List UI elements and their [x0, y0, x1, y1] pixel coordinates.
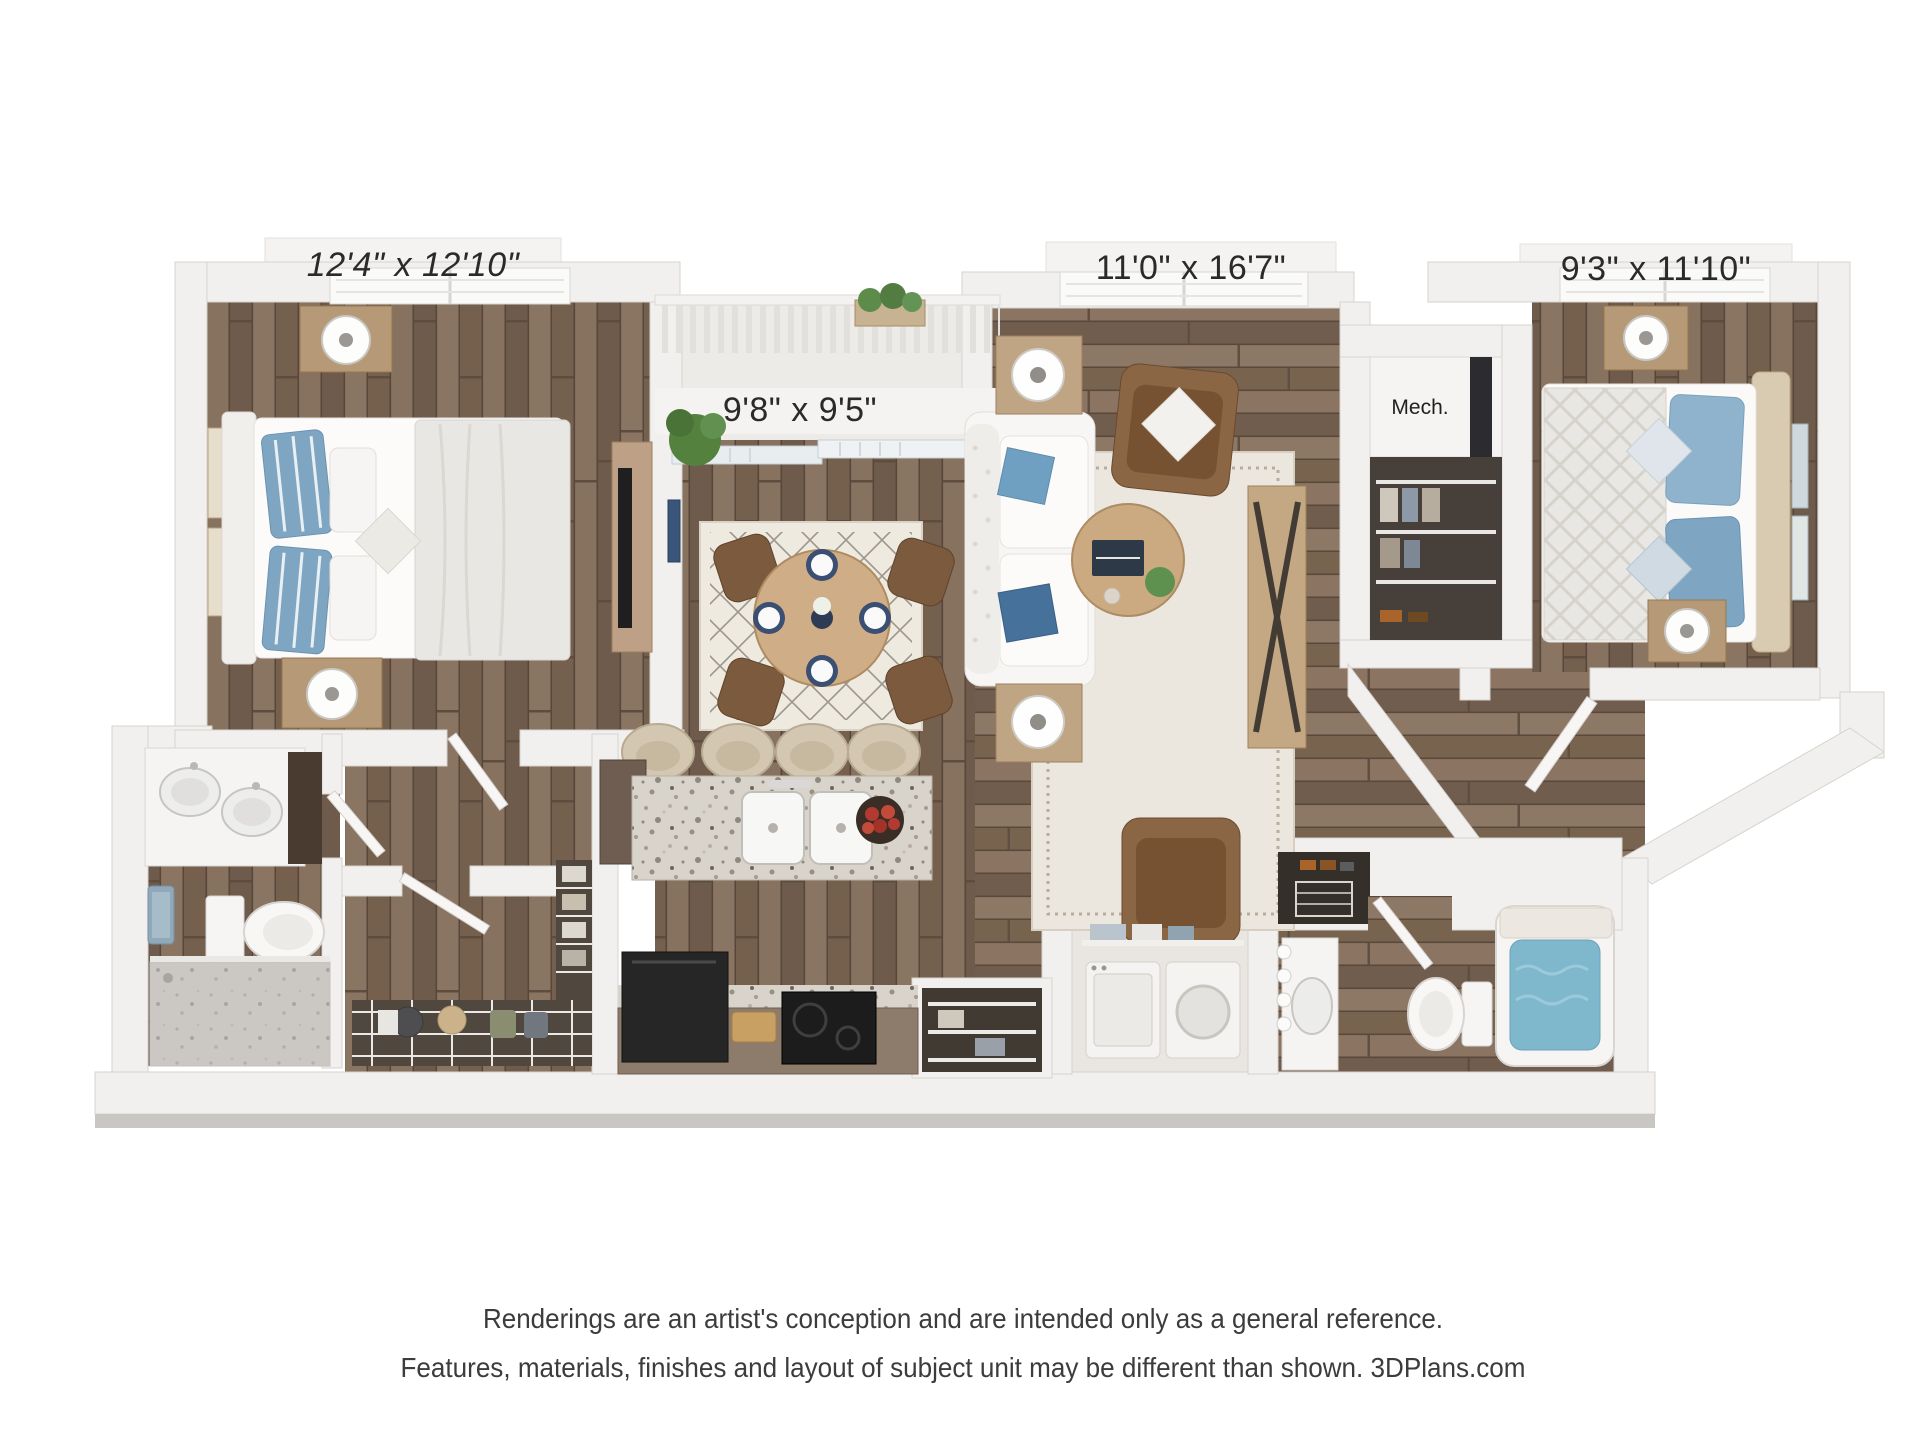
faucet: [768, 780, 812, 788]
disclaimer-line-1: Renderings are an artist's conception an…: [483, 1303, 1443, 1334]
sofa-back: [965, 424, 999, 674]
blue-throw-pillow: [998, 448, 1055, 505]
floor-plan-page: 12'4" x 12'10" 11'0" x 16'7" 9'3" x 11'1…: [0, 0, 1920, 1440]
bedroom-2-bottom-wall-stub: [1460, 668, 1490, 700]
bath-1-left-outer-wall: [112, 726, 148, 1090]
balcony-rail-top: [655, 295, 1000, 305]
towel: [1090, 924, 1126, 940]
wire-shelf: [1082, 940, 1244, 946]
nightstand-with-lamp: [300, 306, 392, 372]
mech-gap: [1470, 357, 1492, 457]
closet-side-rack: [556, 860, 592, 1000]
bottom-wall-fascia: [95, 1114, 1655, 1128]
wall-art-frame: [1792, 516, 1808, 600]
tv: [618, 468, 632, 628]
shower-drain: [163, 973, 173, 983]
candle: [1104, 588, 1120, 604]
cutting-board: [732, 1012, 776, 1042]
disclaimer-line-2: Features, materials, finishes and layout…: [401, 1352, 1526, 1383]
disclaimer: Renderings are an artist's conception an…: [401, 1303, 1526, 1383]
closet-top-wall-left: [342, 866, 402, 896]
vanity-cabinet: [288, 752, 322, 864]
centerpiece-flowers: [813, 597, 831, 615]
vanity-2: [1277, 938, 1338, 1070]
sink: [1292, 978, 1332, 1034]
fruit-bowl: [856, 796, 904, 844]
double-vanity: [145, 748, 322, 866]
armchair: [1110, 362, 1240, 498]
dryer: [1166, 962, 1240, 1058]
blue-throw-pillow: [998, 584, 1058, 642]
dining-area: [700, 522, 958, 730]
mech-closet-label: Mech.: [1391, 396, 1448, 419]
shoe-closet: [1278, 852, 1370, 924]
pantry-closet: [922, 988, 1042, 1072]
headboard: [1752, 372, 1790, 652]
linen-closet: [1370, 457, 1502, 640]
closet-2-bottom-wall: [1340, 640, 1532, 668]
vanity-light: [1277, 993, 1291, 1007]
nightstand-with-lamp: [1604, 306, 1688, 370]
folded-linen: [378, 1010, 398, 1034]
bathtub: [1496, 906, 1614, 1066]
nightstand-with-lamp: [1648, 600, 1726, 662]
nightstand-with-lamp: [282, 658, 382, 728]
balcony-planter: [855, 283, 925, 326]
left-outer-wall: [175, 262, 207, 767]
cooktop: [782, 992, 876, 1064]
floor-plan-rendering: 12'4" x 12'10" 11'0" x 16'7" 9'3" x 11'1…: [0, 0, 1920, 1440]
bag: [524, 1012, 548, 1038]
headboard: [222, 412, 256, 664]
white-pillow: [330, 556, 376, 640]
shower-curb: [150, 956, 330, 962]
vanity-light: [1277, 1017, 1291, 1031]
balcony-railing: [655, 305, 1000, 353]
white-pillow: [330, 448, 376, 532]
end-table-with-lamp: [996, 684, 1082, 762]
blue-wall-art: [668, 500, 680, 562]
faucet: [252, 782, 260, 790]
bag: [490, 1010, 516, 1038]
bath-1-right-wall-upper: [322, 734, 342, 794]
bathroom-1: [145, 748, 330, 1066]
towel: [1168, 926, 1194, 940]
washer: [1086, 962, 1160, 1058]
right-outer-wall: [1818, 262, 1850, 698]
bath-water: [1510, 940, 1600, 1050]
closet-bottom-rack: [352, 1000, 592, 1066]
towel-bar: [148, 886, 174, 944]
shower: [150, 956, 330, 1066]
table-plant: [1145, 567, 1175, 597]
angled-outer-wall: [1622, 728, 1884, 884]
dining-table: [753, 549, 891, 687]
towel: [1132, 924, 1162, 940]
shoes: [1340, 862, 1354, 871]
shoes: [1300, 860, 1316, 870]
media-console-bedroom-1: [612, 442, 652, 652]
bedroom-2-bottom-wall: [1590, 668, 1820, 700]
media-console: [1248, 486, 1306, 748]
living-room-dimensions-label: 11'0" x 16'7": [1096, 249, 1286, 287]
coffee-table: [1072, 504, 1184, 616]
vanity-light: [1277, 969, 1291, 983]
balcony-dimensions-label: 9'8" x 9'5": [723, 391, 877, 429]
toilet-2: [1408, 978, 1492, 1050]
wall-art-frame: [1792, 424, 1808, 508]
end-table-with-lamp: [996, 336, 1082, 414]
bedroom-2-dimensions-label: 9'3" x 11'10": [1561, 250, 1751, 288]
refrigerator: [622, 952, 728, 1062]
faucet: [190, 762, 198, 770]
bed-1: [222, 412, 570, 664]
bath-towel: [1500, 908, 1612, 938]
bedroom-1-dimensions-label: 12'4" x 12'10": [307, 246, 521, 284]
duvet: [415, 420, 570, 660]
shoes: [1320, 860, 1336, 870]
mech-right-wall: [1502, 325, 1532, 647]
vanity-light: [1277, 945, 1291, 959]
hat: [438, 1006, 466, 1034]
bottom-outer-wall: [95, 1072, 1655, 1114]
